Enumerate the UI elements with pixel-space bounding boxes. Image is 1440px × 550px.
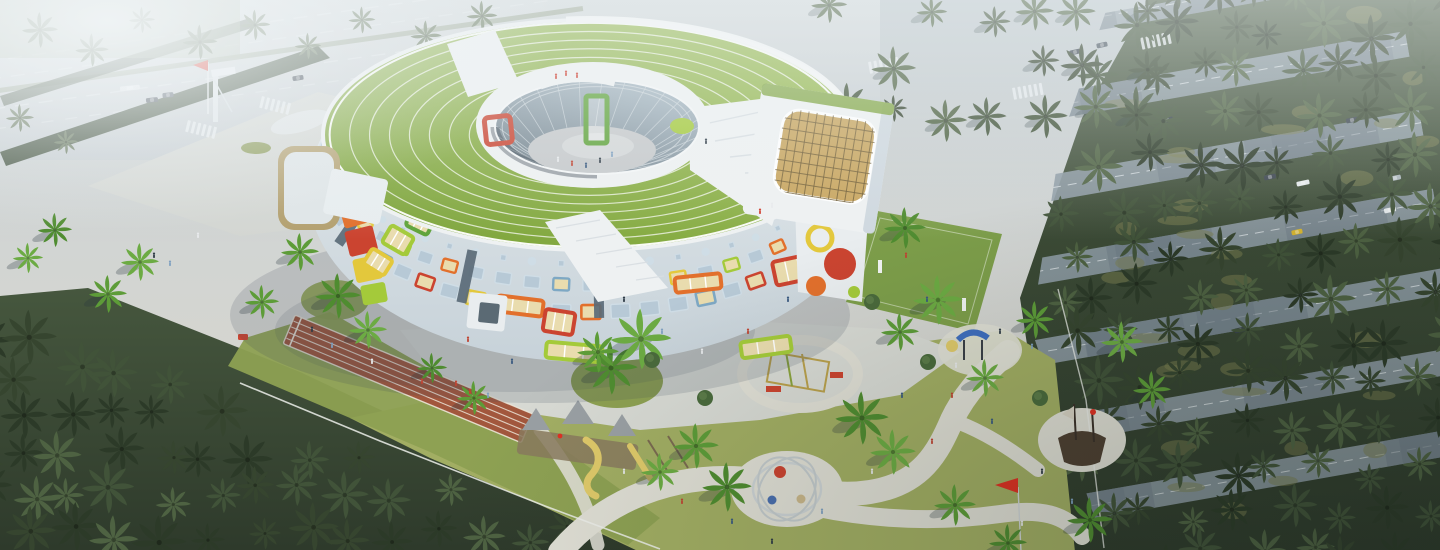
vignette-corner [0,0,1440,550]
architectural-rendering [0,0,1440,550]
rendering-canvas [0,0,1440,550]
